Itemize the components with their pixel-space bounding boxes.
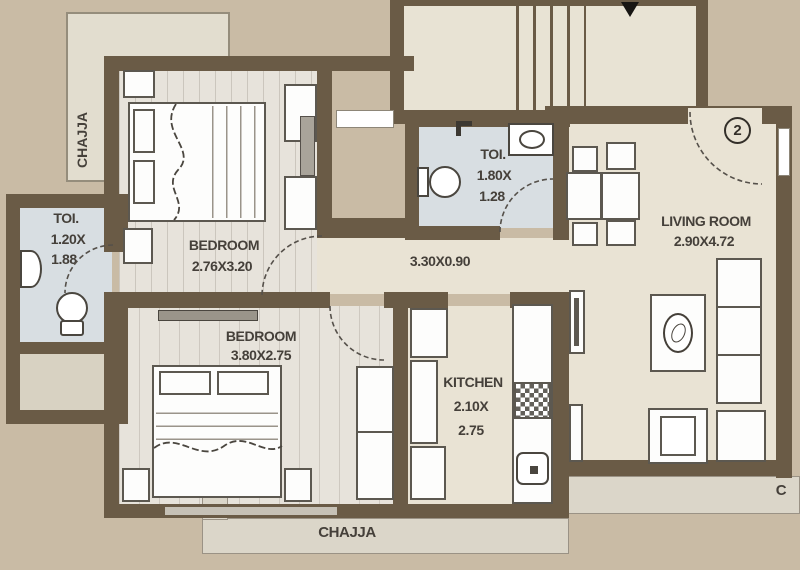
- dresser-icon: [158, 310, 258, 321]
- wall: [104, 292, 330, 308]
- pillow-icon: [133, 160, 155, 204]
- unit-number-badge: 2: [724, 117, 751, 144]
- wall: [6, 342, 128, 354]
- stove-icon: [514, 382, 551, 419]
- wardrobe-divider: [358, 431, 392, 433]
- mattress-lines: [212, 106, 262, 218]
- nightstand: [123, 70, 155, 98]
- kitchen-counter: [410, 308, 448, 358]
- kitchen-dim1: 2.10X: [454, 398, 489, 414]
- wall: [553, 292, 569, 518]
- toilet2-label: TOI.: [480, 146, 505, 162]
- tv-unit-icon: [569, 290, 585, 354]
- wall: [6, 410, 128, 424]
- toilet2-dim2: 1.28: [479, 188, 505, 204]
- pillow-icon: [159, 371, 211, 395]
- pillow-icon: [217, 371, 269, 395]
- sofa-cushion-line: [718, 354, 760, 356]
- living-room-dims: 2.90X4.72: [674, 233, 734, 249]
- cabinet: [569, 404, 583, 462]
- pillow-icon: [133, 109, 155, 153]
- wall: [352, 56, 414, 71]
- wall: [405, 226, 500, 240]
- toilet1-label: TOI.: [53, 210, 78, 226]
- nightstand: [123, 228, 153, 264]
- wall: [393, 504, 569, 518]
- plant-icon: [663, 313, 693, 353]
- kitchen-dim2: 2.75: [458, 422, 484, 438]
- nightstand: [284, 468, 312, 502]
- stair-direction-arrow-icon: [621, 2, 639, 17]
- wardrobe-icon: [356, 366, 394, 500]
- stair-landing-right: [586, 6, 696, 110]
- sofa-cushion-line: [718, 306, 760, 308]
- wall: [317, 218, 419, 238]
- chajja-left-label: CHAJJA: [74, 68, 90, 168]
- toilet1-dim1: 1.20X: [51, 231, 86, 247]
- chajja-bottom-strip: [202, 518, 569, 554]
- chair-seat: [660, 416, 696, 456]
- staircase-steps-icon: [516, 6, 586, 110]
- shower-icon: [456, 126, 461, 136]
- washbasin-icon: [20, 250, 42, 288]
- kitchen-counter: [410, 360, 438, 444]
- stair-landing-left: [404, 6, 516, 110]
- dining-table-icon: [566, 172, 640, 220]
- wc-icon: [429, 166, 461, 198]
- wardrobe-slider: [300, 116, 315, 176]
- dining-chair-icon: [572, 222, 598, 246]
- bedroom1-label: BEDROOM: [189, 237, 259, 253]
- mattress-lines: [156, 402, 278, 440]
- chajja-bottom-label: CHAJJA: [318, 524, 376, 541]
- toilet1-dim2: 1.88: [51, 251, 77, 267]
- dining-chair-icon: [572, 146, 598, 172]
- wall: [6, 194, 128, 208]
- kitchen-counter: [410, 446, 446, 500]
- sink-drain: [530, 466, 538, 474]
- kitchen-sink-icon: [516, 452, 549, 485]
- tv-screen: [574, 298, 579, 346]
- bedroom1-dims: 2.76X3.20: [192, 258, 252, 274]
- chair-icon: [648, 408, 708, 464]
- dining-chair-icon: [606, 220, 636, 246]
- basin-bowl: [519, 130, 545, 149]
- wall: [104, 56, 352, 71]
- toilet1-duct: [20, 354, 112, 410]
- dining-chair-icon: [606, 142, 636, 170]
- wall: [317, 56, 332, 236]
- wall: [393, 292, 408, 518]
- bedroom2-label: BEDROOM: [226, 328, 296, 344]
- living-room-window: [778, 128, 790, 176]
- wc-tank: [60, 320, 84, 336]
- floor-plan: CHAJJA: [0, 0, 800, 570]
- living-room-label: LIVING ROOM: [661, 213, 751, 229]
- armchair-icon: [716, 410, 766, 462]
- toilet2-dim1: 1.80X: [477, 167, 512, 183]
- chajja-right-strip: [553, 476, 800, 514]
- washbasin-icon: [508, 123, 554, 156]
- bedroom2-window: [165, 507, 337, 515]
- bedroom2-dims: 3.80X2.75: [231, 347, 291, 363]
- plant-leaf: [668, 321, 688, 345]
- table-divider: [600, 174, 603, 218]
- wall: [112, 296, 128, 424]
- wardrobe-icon: [284, 176, 317, 230]
- shaft-window: [336, 110, 394, 128]
- chajja-right-label: C: [776, 482, 786, 499]
- wall: [6, 194, 20, 424]
- entrance-door-opening: [688, 108, 762, 124]
- passage-dims: 3.30X0.90: [410, 253, 470, 269]
- nightstand: [122, 468, 150, 502]
- kitchen-label: KITCHEN: [443, 374, 502, 390]
- sofa-icon: [716, 258, 762, 404]
- wc-tank: [417, 167, 429, 197]
